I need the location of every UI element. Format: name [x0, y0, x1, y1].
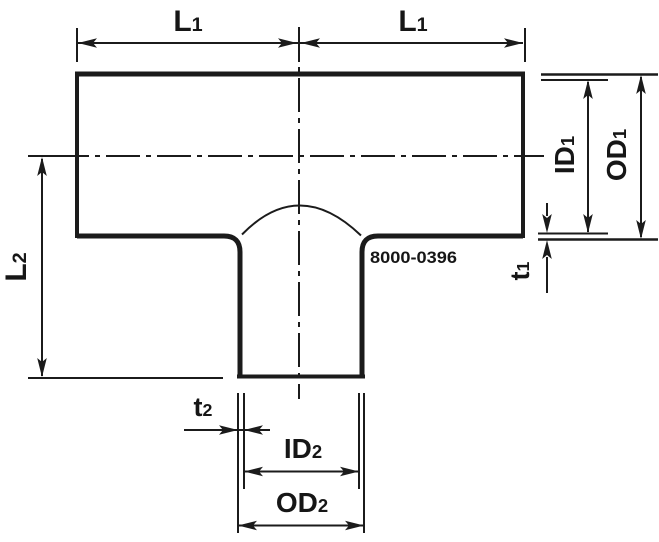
dim-label-l2: L2: [0, 252, 33, 281]
pipe-bottom-left-and-branch-left: [77, 236, 240, 377]
dimension-l1: L1 L1: [77, 5, 525, 62]
dim-label-od1: OD1: [601, 129, 632, 181]
arrowhead-t1-up: [542, 240, 552, 259]
dim-label-id2: ID2: [284, 433, 322, 464]
dim-label-l1-right: L1: [398, 5, 427, 38]
dim-label-id1: ID1: [549, 136, 580, 174]
centerlines: [55, 27, 544, 399]
arrowhead-t1-down: [542, 214, 552, 233]
technical-drawing-canvas: L1 L1 ID1 OD1 t1 L2: [0, 0, 659, 542]
dim-label-od2: OD2: [276, 487, 328, 518]
dim-label-l1-left: L1: [173, 5, 202, 38]
dimension-l2: L2: [0, 156, 223, 378]
dim-label-t1: t1: [505, 261, 535, 280]
crotch-weld-arc: [242, 205, 361, 235]
dimension-t2-id2-od2: t2 ID2 OD2: [184, 392, 364, 533]
dim-label-t2: t2: [194, 392, 213, 422]
part-number: 8000-0396: [370, 248, 457, 267]
dimension-id1-od1-t1: ID1 OD1 t1: [505, 75, 658, 294]
tee-fitting-diagram: L1 L1 ID1 OD1 t1 L2: [0, 0, 659, 542]
